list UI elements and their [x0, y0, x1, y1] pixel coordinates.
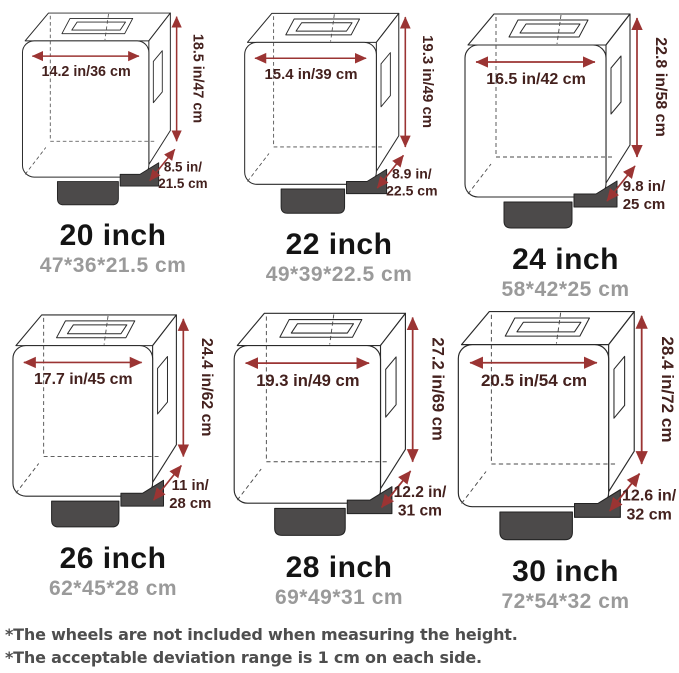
- size-title: 26 inch: [60, 542, 167, 576]
- size-title: 28 inch: [286, 551, 393, 585]
- luggage-size-chart: 14.2 in/36 cm 18.5 in/47 cm 8.5 in/ 21.5…: [0, 0, 679, 673]
- luggage-base-front: [281, 189, 345, 213]
- depth-dimension-label-line2: 21.5 cm: [158, 176, 207, 191]
- depth-dimension-label-line2: 31 cm: [398, 503, 442, 520]
- size-cm-label: 47*36*21.5 cm: [40, 254, 187, 278]
- width-dimension-label: 14.2 in/36 cm: [42, 64, 131, 80]
- luggage-diagram: 15.4 in/39 cm 19.3 in/49 cm 8.9 in/ 22.5…: [240, 5, 438, 222]
- size-panel-3: 17.7 in/45 cm 24.4 in/62 cm 11 in/ 28 cm…: [0, 292, 226, 622]
- luggage-outline: [245, 13, 399, 213]
- depth-dimension-label-line1: 12.6 in/: [622, 487, 677, 504]
- height-dimension-label: 22.8 in/58 cm: [652, 37, 669, 137]
- depth-dimension-label-line1: 8.9 in/: [392, 166, 432, 182]
- size-panel-1: 15.4 in/39 cm 19.3 in/49 cm 8.9 in/ 22.5…: [226, 0, 452, 292]
- depth-dimension-label-line2: 28 cm: [169, 496, 211, 512]
- footnote-line: *The acceptable deviation range is 1 cm …: [5, 646, 679, 669]
- width-dimension-label: 15.4 in/39 cm: [264, 66, 357, 83]
- luggage-base-front: [57, 182, 118, 205]
- depth-dimension-label-line1: 11 in/: [172, 478, 209, 494]
- luggage-diagram: 17.7 in/45 cm 24.4 in/62 cm 11 in/ 28 cm: [8, 306, 218, 536]
- footnotes: *The wheels are not included when measur…: [5, 623, 679, 669]
- size-cm-label: 69*49*31 cm: [275, 586, 403, 610]
- luggage-diagram: 19.3 in/49 cm 27.2 in/69 cm 12.2 in/ 31 …: [229, 304, 449, 545]
- depth-dimension-label-line1: 8.5 in/: [164, 160, 202, 175]
- height-dimension-label: 24.4 in/62 cm: [198, 338, 215, 437]
- depth-dimension-label-line2: 32 cm: [626, 506, 671, 523]
- height-dimension-label: 19.3 in/49 cm: [419, 35, 436, 128]
- size-grid: 14.2 in/36 cm 18.5 in/47 cm 8.5 in/ 21.5…: [0, 0, 679, 622]
- width-dimension-label: 17.7 in/45 cm: [34, 371, 133, 388]
- luggage-base-front: [504, 202, 572, 228]
- luggage-diagram: 16.5 in/42 cm 22.8 in/58 cm 9.8 in/ 25 c…: [460, 5, 672, 237]
- luggage-outline: [458, 312, 634, 540]
- size-cm-label: 72*54*32 cm: [501, 590, 629, 614]
- luggage-outline: [465, 14, 630, 228]
- depth-dimension-label-line1: 9.8 in/: [622, 178, 665, 195]
- width-dimension-label: 16.5 in/42 cm: [486, 71, 586, 88]
- luggage-base-front: [275, 508, 346, 535]
- depth-dimension-label-line2: 22.5 cm: [386, 183, 437, 199]
- luggage-outline: [13, 315, 176, 527]
- size-cm-label: 62*45*28 cm: [49, 577, 177, 601]
- luggage-base-front: [52, 501, 119, 527]
- size-panel-0: 14.2 in/36 cm 18.5 in/47 cm 8.5 in/ 21.5…: [0, 0, 226, 292]
- luggage-outline: [22, 13, 170, 205]
- size-title: 30 inch: [512, 555, 619, 589]
- size-cm-label: 49*39*22.5 cm: [266, 263, 413, 287]
- luggage-base-front: [499, 512, 571, 540]
- footnote-line: *The wheels are not included when measur…: [5, 623, 679, 646]
- depth-dimension-label-line1: 12.2 in/: [394, 484, 447, 501]
- height-dimension-label: 18.5 in/47 cm: [190, 34, 206, 123]
- size-panel-4: 19.3 in/49 cm 27.2 in/69 cm 12.2 in/ 31 …: [226, 292, 452, 622]
- size-panel-5: 20.5 in/54 cm 28.4 in/72 cm 12.6 in/ 32 …: [452, 292, 679, 622]
- luggage-diagram: 20.5 in/54 cm 28.4 in/72 cm 12.6 in/ 32 …: [453, 302, 679, 549]
- size-title: 22 inch: [286, 228, 393, 262]
- size-title: 24 inch: [512, 243, 619, 277]
- size-title: 20 inch: [60, 219, 167, 253]
- size-panel-2: 16.5 in/42 cm 22.8 in/58 cm 9.8 in/ 25 c…: [452, 0, 679, 292]
- depth-dimension-label-line2: 25 cm: [622, 196, 665, 213]
- height-dimension-label: 27.2 in/69 cm: [428, 337, 447, 440]
- width-dimension-label: 19.3 in/49 cm: [256, 371, 359, 390]
- luggage-diagram: 14.2 in/36 cm 18.5 in/47 cm 8.5 in/ 21.5…: [18, 5, 208, 213]
- luggage-outline: [234, 313, 405, 535]
- height-dimension-label: 28.4 in/72 cm: [657, 336, 676, 442]
- width-dimension-label: 20.5 in/54 cm: [480, 371, 586, 390]
